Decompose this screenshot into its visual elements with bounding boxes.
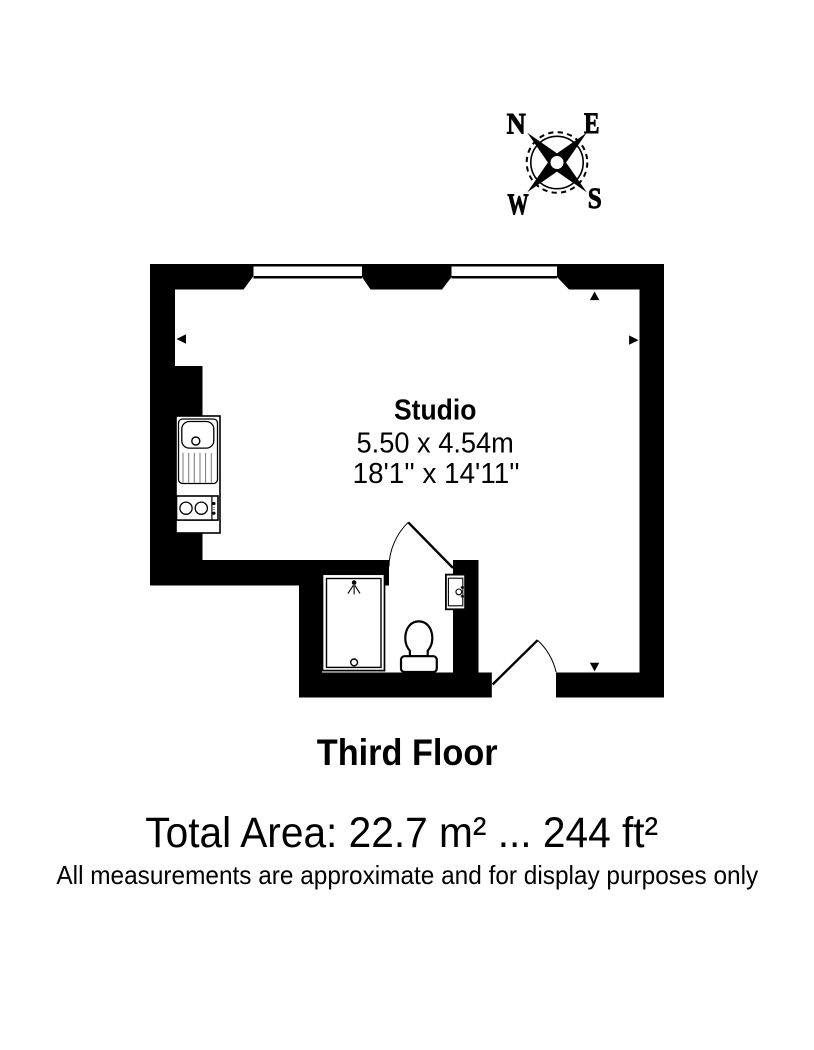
svg-text:S: S [588, 182, 602, 215]
svg-text:5.50 x 4.54m: 5.50 x 4.54m [357, 428, 514, 460]
svg-text:Third Floor: Third Floor [317, 731, 498, 773]
svg-text:Total Area: 22.7 m² ... 244 ft: Total Area: 22.7 m² ... 244 ft² [145, 809, 658, 857]
svg-text:E: E [584, 107, 600, 140]
svg-text:All measurements are approxima: All measurements are approximate and for… [56, 860, 758, 890]
svg-text:Studio: Studio [394, 394, 477, 426]
svg-text:W: W [507, 188, 528, 221]
svg-text:N: N [507, 108, 526, 141]
svg-text:18'1'' x 14'11'': 18'1'' x 14'11'' [353, 458, 520, 490]
